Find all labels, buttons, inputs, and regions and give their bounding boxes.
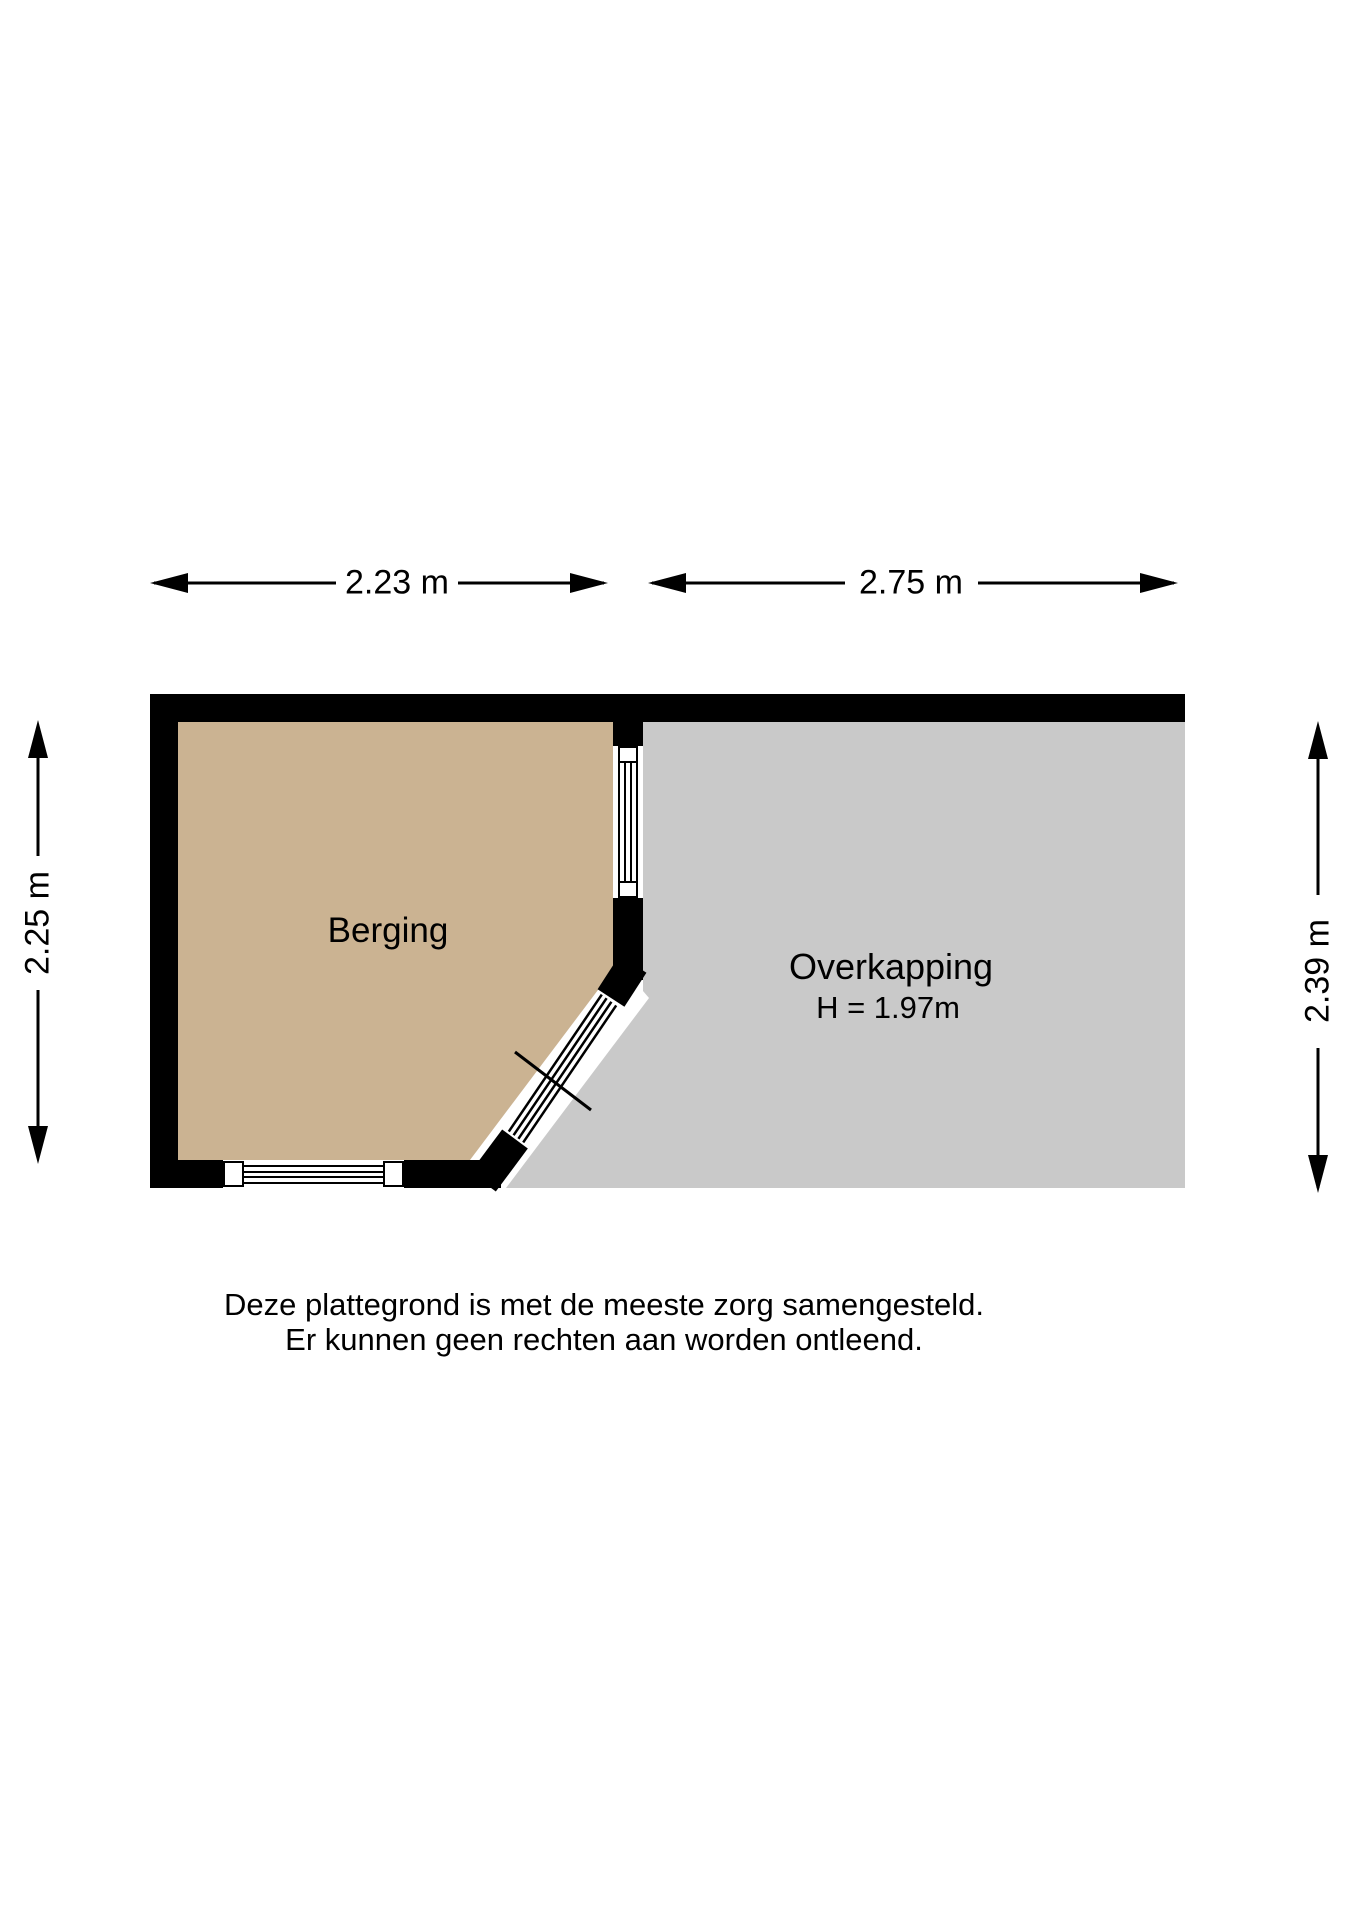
wall-top (150, 694, 1185, 722)
dimension-label-berging-height: 2.25 m (19, 871, 58, 975)
dimension-label-overkapping-height: 2.39 m (1299, 919, 1338, 1023)
floorplan-page: 2.23 m 2.75 m 2.25 m 2.39 m Berging Over… (0, 0, 1358, 1920)
room-height-note-overkapping: H = 1.97m (816, 990, 960, 1026)
disclaimer-line-1: Deze plattegrond is met de meeste zorg s… (224, 1287, 984, 1322)
wall-left (150, 694, 178, 1188)
wall-bottom-left (150, 1160, 223, 1188)
window-interior-wall (613, 746, 643, 898)
room-label-berging: Berging (328, 911, 449, 951)
window-bottom-wall (223, 1160, 404, 1188)
wall-bottom-right (404, 1160, 501, 1188)
room-label-overkapping: Overkapping (789, 946, 993, 988)
dimension-label-berging-width: 2.23 m (345, 564, 449, 603)
wall-interior-bottom-stub (613, 898, 643, 980)
wall-interior-top-stub (613, 722, 643, 746)
disclaimer-line-2: Er kunnen geen rechten aan worden ontlee… (224, 1322, 984, 1357)
floorplan-drawing (0, 0, 1358, 1920)
disclaimer: Deze plattegrond is met de meeste zorg s… (224, 1287, 984, 1357)
dimension-label-overkapping-width: 2.75 m (859, 564, 963, 603)
